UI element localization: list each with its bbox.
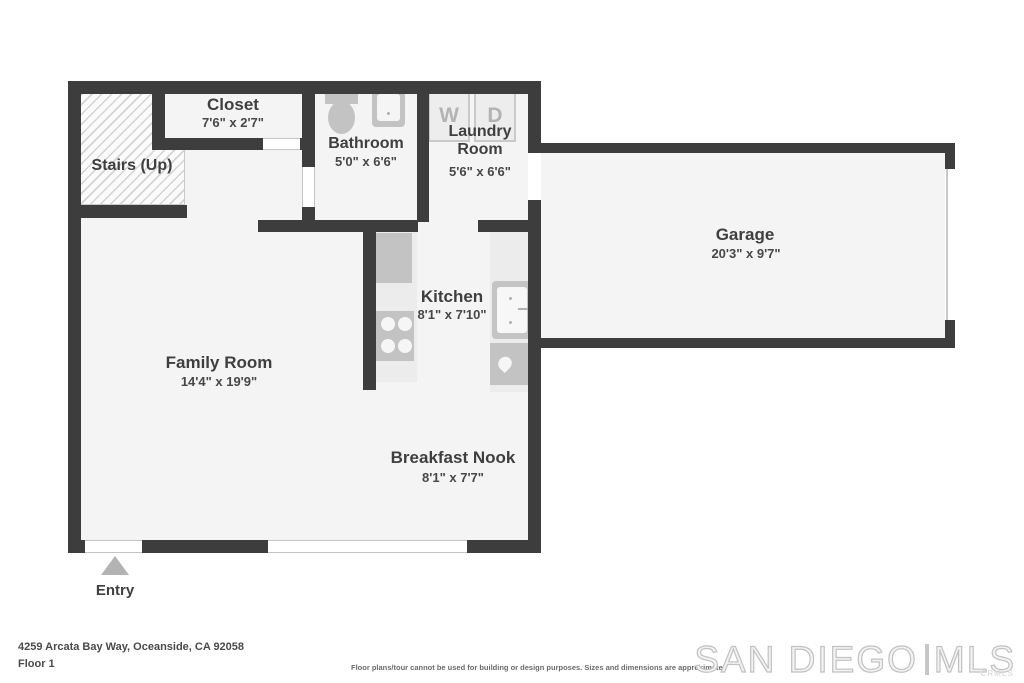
burner-icon [381, 317, 395, 331]
logo-sub-text: CRMLS [981, 669, 1014, 678]
wall-kitchen-top-right [478, 220, 541, 232]
wall-bottom-seg3 [467, 540, 541, 553]
window-opening [268, 540, 467, 553]
fridge-icon [376, 233, 412, 283]
burner-icon [398, 317, 412, 331]
room-label-laundry: Laundry Room [438, 123, 522, 160]
san-diego-mls-logo: SAN DIEGO MLS [694, 641, 1016, 678]
room-dims-closet: 7'6" x 2'7" [202, 115, 264, 130]
room-label-breakfast-nook: Breakfast Nook [391, 448, 516, 468]
entry-door-opening [85, 540, 142, 553]
logo-part1: SAN DIEGO [694, 641, 918, 678]
disclaimer-text: Floor plans/tour cannot be used for buil… [351, 663, 725, 672]
room-label-garage: Garage [716, 225, 775, 245]
wall-garage-bottom [541, 338, 955, 348]
wall-garage-top [541, 143, 955, 153]
room-label-bathroom: Bathroom [328, 135, 404, 153]
closet-door-opening [263, 138, 300, 150]
room-label-kitchen: Kitchen [421, 287, 483, 307]
entry-arrow-icon [101, 556, 129, 575]
room-dims-garage: 20'3" x 9'7" [711, 246, 780, 261]
wall-stairs-bottom [68, 205, 187, 218]
wall-garage-right-lower [945, 320, 955, 348]
wall-outer-right-lower [528, 200, 541, 553]
kitchen-sink-icon [492, 281, 532, 339]
garage-door-line [946, 169, 948, 320]
wall-bathroom-left-upper [302, 81, 315, 167]
room-dims-bathroom: 5'0" x 6'6" [335, 154, 397, 169]
floor-number-text: Floor 1 [18, 658, 55, 670]
burner-icon [381, 339, 395, 353]
room-dims-breakfast-nook: 8'1" x 7'7" [422, 470, 484, 485]
wall-kitchen-left [363, 232, 376, 390]
sink-icon [372, 90, 405, 127]
wall-outer-left [68, 81, 81, 553]
stove-icon [376, 311, 414, 361]
wall-bottom-seg2 [142, 540, 268, 553]
room-dims-laundry: 5'6" x 6'6" [449, 164, 511, 179]
bathroom-door-opening [302, 167, 315, 207]
wall-outer-right-upper [528, 81, 541, 153]
wall-closet-bottom [152, 138, 263, 150]
burner-icon [398, 339, 412, 353]
dishwasher-icon [490, 343, 530, 385]
room-label-stairs: Stairs (Up) [92, 157, 173, 175]
garage-pass-opening [528, 153, 541, 200]
floor-plan: W D Closet 7'6" x 2'7" Stairs (Up) Bathr… [0, 0, 1024, 683]
wall-garage-right-upper [945, 143, 955, 169]
room-dims-kitchen: 8'1" x 7'10" [417, 307, 486, 322]
wall-kitchen-top-left [258, 220, 418, 232]
address-text: 4259 Arcata Bay Way, Oceanside, CA 92058 [18, 641, 244, 653]
room-dims-family-room: 14'4" x 19'9" [181, 374, 257, 389]
room-label-family-room: Family Room [166, 353, 273, 373]
wall-bath-laundry-divider [417, 81, 429, 222]
logo-divider [925, 644, 929, 675]
wall-bottom-seg1 [68, 540, 85, 553]
entry-label: Entry [96, 582, 134, 599]
toilet-icon [328, 101, 355, 134]
room-label-closet: Closet [207, 95, 259, 115]
